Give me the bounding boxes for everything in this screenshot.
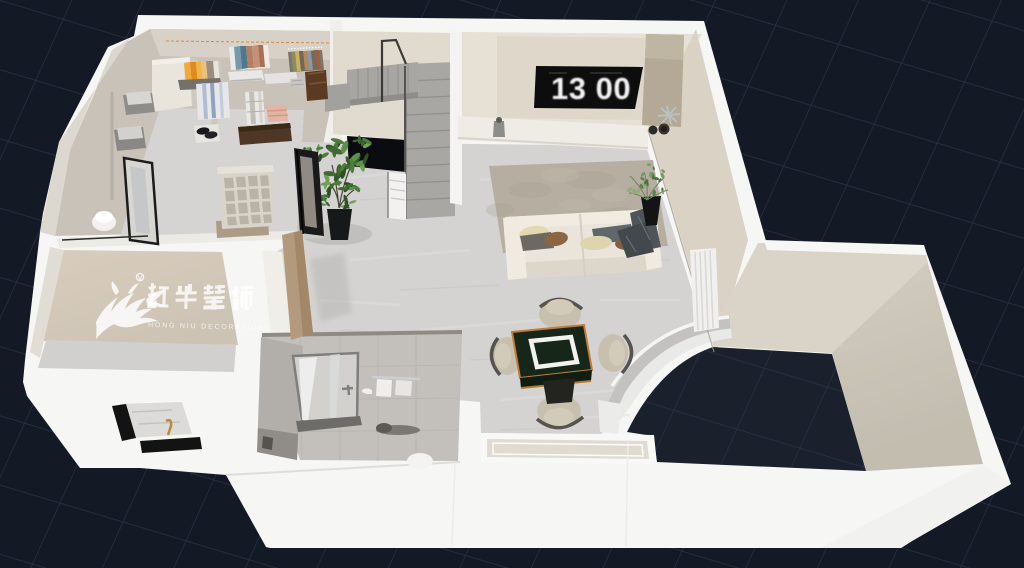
- svg-text:13 00: 13 00: [551, 71, 631, 106]
